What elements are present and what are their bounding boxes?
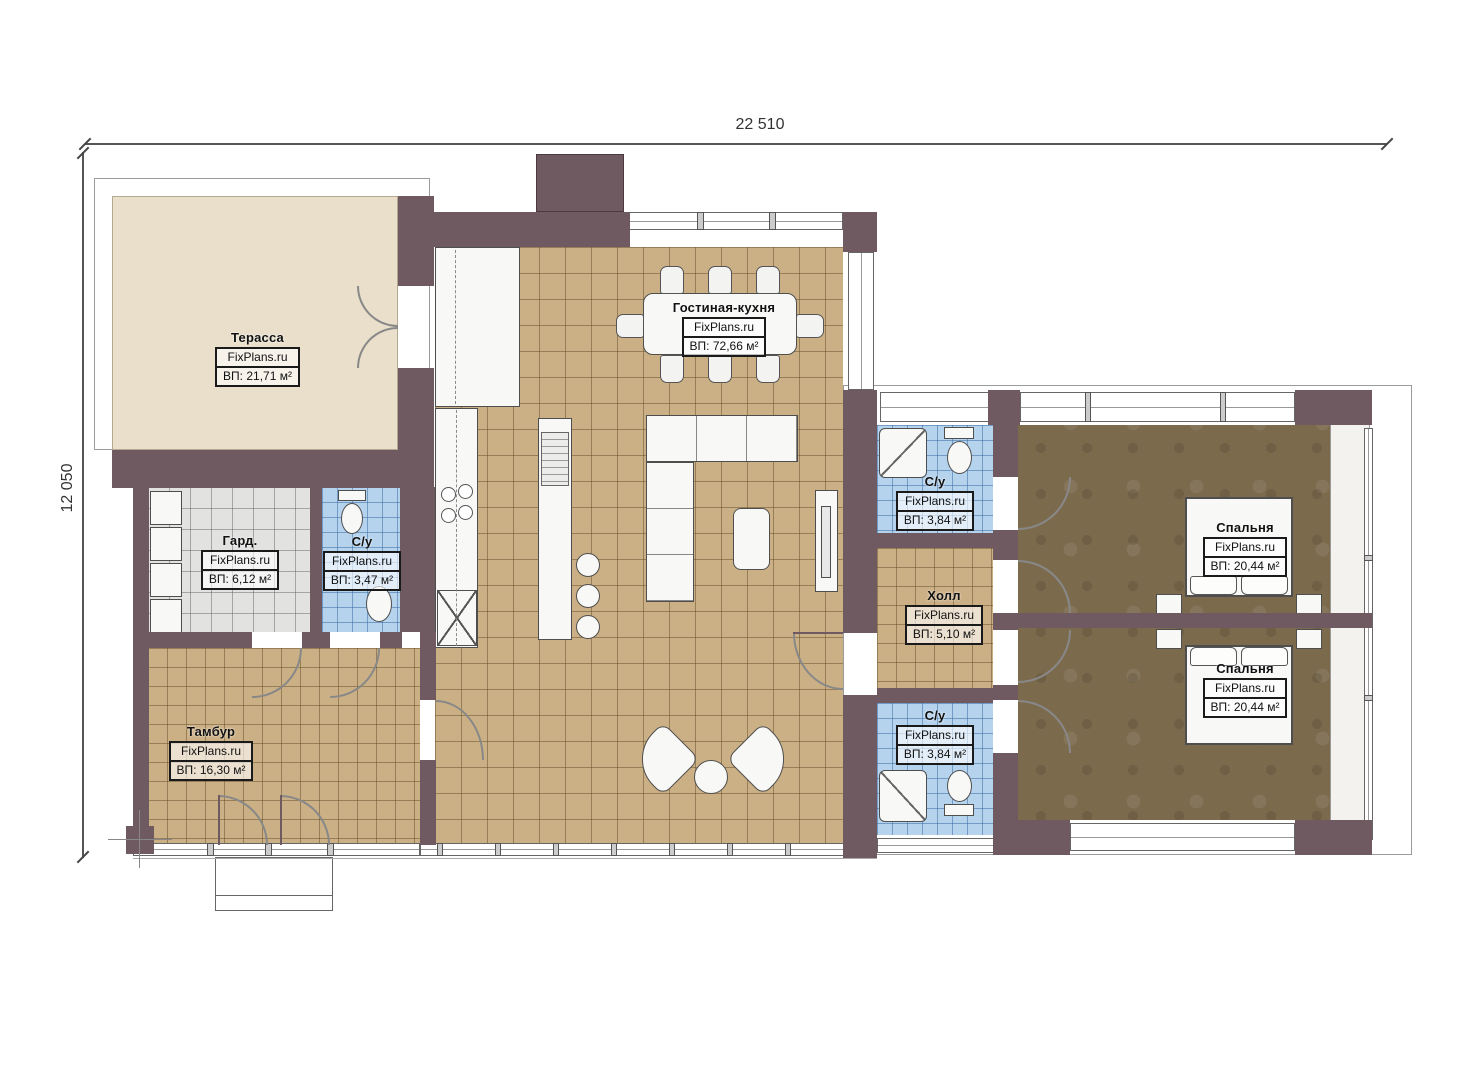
bar-stool bbox=[576, 584, 600, 608]
window bbox=[1364, 428, 1373, 840]
watermark: FixPlans.ru bbox=[898, 493, 972, 512]
axis-line bbox=[139, 810, 140, 868]
cooktop-burner bbox=[458, 505, 473, 520]
room-info-box: FixPlans.ru ВП: 16,30 м² bbox=[169, 741, 254, 781]
room-area: ВП: 20,44 м² bbox=[1205, 699, 1286, 716]
room-label-bathroom-2: С/у FixPlans.ru ВП: 3,84 м² bbox=[888, 474, 982, 531]
room-name: Холл bbox=[897, 588, 991, 603]
window-post bbox=[495, 843, 501, 856]
wall-segment bbox=[993, 685, 1018, 700]
dining-chair bbox=[796, 314, 824, 338]
room-info-box: FixPlans.ru ВП: 20,44 м² bbox=[1203, 537, 1288, 577]
room-info-box: FixPlans.ru ВП: 72,66 м² bbox=[682, 317, 767, 357]
entry-steps bbox=[215, 857, 333, 911]
wall-segment bbox=[1020, 820, 1070, 855]
window-post bbox=[1085, 392, 1091, 422]
room-name: Спальня bbox=[1191, 520, 1299, 535]
dimension-line-left bbox=[82, 152, 84, 858]
watermark: FixPlans.ru bbox=[907, 607, 981, 626]
window-post bbox=[1220, 392, 1226, 422]
room-info-box: FixPlans.ru ВП: 3,84 м² bbox=[896, 491, 974, 531]
shower-tray bbox=[879, 770, 927, 822]
window-post bbox=[785, 843, 791, 856]
window-post bbox=[669, 843, 675, 856]
wall-segment bbox=[877, 688, 993, 703]
bar-stool bbox=[576, 553, 600, 577]
wall-bedroom-divider bbox=[1018, 613, 1372, 628]
room-name: Терасса bbox=[200, 330, 315, 345]
cooktop-burner bbox=[441, 487, 456, 502]
wall-segment bbox=[400, 487, 435, 632]
room-area: ВП: 3,84 м² bbox=[898, 512, 972, 529]
cooktop-burner bbox=[441, 508, 456, 523]
toilet-bowl bbox=[947, 770, 972, 802]
wall-segment bbox=[302, 632, 330, 648]
dining-chair bbox=[708, 355, 732, 383]
window bbox=[1070, 823, 1295, 851]
room-name: С/у bbox=[320, 534, 404, 549]
structural-column bbox=[126, 826, 154, 854]
room-label-bedroom-2: Спальня FixPlans.ru ВП: 20,44 м² bbox=[1191, 661, 1299, 718]
room-label-vestibule: Тамбур FixPlans.ru ВП: 16,30 м² bbox=[163, 724, 259, 781]
wall-segment bbox=[843, 390, 877, 633]
window-post bbox=[207, 843, 214, 856]
kitchen-cabinets bbox=[435, 247, 520, 407]
room-info-box: FixPlans.ru ВП: 20,44 м² bbox=[1203, 678, 1288, 718]
dimension-height-label: 12 050 bbox=[59, 443, 79, 533]
wall-segment bbox=[420, 212, 630, 247]
axis-line bbox=[108, 839, 172, 840]
toilet-bowl bbox=[341, 503, 363, 534]
shower-tray bbox=[879, 428, 927, 478]
window bbox=[420, 843, 877, 856]
window-post bbox=[769, 212, 776, 230]
room-label-bathroom-1: С/у FixPlans.ru ВП: 3,47 м² bbox=[320, 534, 404, 591]
wardrobe-closet bbox=[150, 563, 182, 597]
wall-pillar bbox=[993, 820, 1020, 855]
wall-segment bbox=[380, 632, 402, 648]
dining-chair bbox=[756, 266, 780, 294]
pillow bbox=[1190, 576, 1237, 595]
wardrobe-closet bbox=[150, 491, 182, 525]
window-post bbox=[553, 843, 559, 856]
room-area: ВП: 72,66 м² bbox=[684, 338, 765, 355]
dining-chair bbox=[616, 314, 644, 338]
wall-segment bbox=[1295, 820, 1372, 855]
watermark: FixPlans.ru bbox=[203, 552, 277, 571]
window-post bbox=[437, 843, 443, 856]
window bbox=[848, 252, 874, 390]
toilet-bowl bbox=[947, 441, 972, 474]
watermark: FixPlans.ru bbox=[1205, 539, 1286, 558]
toilet-tank bbox=[944, 427, 974, 439]
bar-stool bbox=[576, 615, 600, 639]
counter-depth-line bbox=[455, 250, 456, 404]
dining-chair bbox=[756, 355, 780, 383]
room-label-living-kitchen: Гостиная-кухня FixPlans.ru ВП: 72,66 м² bbox=[660, 300, 788, 357]
room-name: Тамбур bbox=[163, 724, 259, 739]
watermark: FixPlans.ru bbox=[1205, 680, 1286, 699]
wall-segment bbox=[112, 450, 434, 488]
toilet-tank bbox=[338, 490, 366, 501]
window bbox=[1020, 392, 1295, 422]
room-area: ВП: 21,71 м² bbox=[217, 368, 298, 385]
room-area: ВП: 5,10 м² bbox=[907, 626, 981, 643]
boiler-unit bbox=[437, 590, 477, 646]
wall-segment bbox=[420, 632, 436, 700]
nightstand bbox=[1156, 594, 1182, 614]
step-edge bbox=[215, 895, 333, 896]
watermark: FixPlans.ru bbox=[684, 319, 765, 338]
door-leaf bbox=[218, 795, 220, 845]
watermark: FixPlans.ru bbox=[217, 349, 298, 368]
coffee-table bbox=[733, 508, 770, 570]
wall-segment bbox=[993, 530, 1018, 560]
floor-terrace bbox=[112, 196, 398, 450]
room-label-wardrobe: Гард. FixPlans.ru ВП: 6,12 м² bbox=[194, 533, 286, 590]
room-area: ВП: 3,84 м² bbox=[898, 746, 972, 763]
tv bbox=[821, 506, 831, 578]
wall-segment bbox=[877, 533, 993, 548]
window bbox=[880, 392, 990, 422]
room-info-box: FixPlans.ru ВП: 3,47 м² bbox=[323, 551, 401, 591]
room-name: Гард. bbox=[194, 533, 286, 548]
watermark: FixPlans.ru bbox=[325, 553, 399, 572]
room-name: Спальня bbox=[1191, 661, 1299, 676]
wardrobe-closet bbox=[150, 599, 182, 633]
chimney bbox=[536, 154, 624, 212]
window-post bbox=[1364, 555, 1373, 561]
counter-depth-line bbox=[456, 410, 457, 646]
floor-plan-canvas: Терасса FixPlans.ru ВП: 21,71 м² Гостина… bbox=[0, 0, 1473, 1080]
nightstand bbox=[1296, 594, 1322, 614]
room-info-box: FixPlans.ru ВП: 5,10 м² bbox=[905, 605, 983, 645]
corner-sofa-side bbox=[646, 462, 694, 602]
dining-chair bbox=[708, 266, 732, 294]
nightstand bbox=[1156, 629, 1182, 649]
window bbox=[133, 843, 420, 856]
window-post bbox=[697, 212, 704, 230]
sill-line bbox=[133, 858, 877, 859]
wall-segment bbox=[988, 390, 1020, 425]
dining-chair bbox=[660, 266, 684, 294]
room-label-hall: Холл FixPlans.ru ВП: 5,10 м² bbox=[897, 588, 991, 645]
door-leaf bbox=[280, 795, 282, 845]
room-name: Гостиная-кухня bbox=[660, 300, 788, 315]
wall-segment bbox=[1295, 390, 1372, 425]
room-label-bedroom-1: Спальня FixPlans.ru ВП: 20,44 м² bbox=[1191, 520, 1299, 577]
dining-chair bbox=[660, 355, 684, 383]
wall-segment bbox=[993, 613, 1018, 630]
cooktop-burner bbox=[458, 484, 473, 499]
room-info-box: FixPlans.ru ВП: 21,71 м² bbox=[215, 347, 300, 387]
window bbox=[628, 212, 843, 230]
room-name: С/у bbox=[888, 708, 982, 723]
dimension-width-label: 22 510 bbox=[680, 116, 840, 134]
corner-sofa-back bbox=[646, 415, 798, 462]
room-name: С/у bbox=[888, 474, 982, 489]
wardrobe-closet bbox=[150, 527, 182, 561]
room-info-box: FixPlans.ru ВП: 6,12 м² bbox=[201, 550, 279, 590]
door-leaf bbox=[793, 632, 843, 634]
watermark: FixPlans.ru bbox=[898, 727, 972, 746]
wall-segment bbox=[148, 632, 252, 648]
room-label-bathroom-3: С/у FixPlans.ru ВП: 3,84 м² bbox=[888, 708, 982, 765]
wall-segment bbox=[420, 760, 436, 845]
wall-pillar bbox=[843, 212, 877, 252]
window-post bbox=[611, 843, 617, 856]
wall-segment bbox=[843, 695, 877, 858]
room-area: ВП: 6,12 м² bbox=[203, 571, 277, 588]
island-sink bbox=[541, 432, 569, 486]
nightstand bbox=[1296, 629, 1322, 649]
room-info-box: FixPlans.ru ВП: 3,84 м² bbox=[896, 725, 974, 765]
side-table bbox=[694, 760, 728, 794]
window-post bbox=[1364, 695, 1373, 701]
window bbox=[877, 838, 995, 853]
room-area: ВП: 3,47 м² bbox=[325, 572, 399, 589]
room-area: ВП: 20,44 м² bbox=[1205, 558, 1286, 575]
pillow bbox=[1241, 576, 1288, 595]
watermark: FixPlans.ru bbox=[171, 743, 252, 762]
window-post bbox=[727, 843, 733, 856]
sink bbox=[366, 586, 392, 622]
toilet-tank bbox=[944, 804, 974, 816]
room-area: ВП: 16,30 м² bbox=[171, 762, 252, 779]
wall-segment bbox=[133, 487, 149, 845]
dimension-line-top bbox=[85, 143, 1387, 145]
room-label-terrace: Терасса FixPlans.ru ВП: 21,71 м² bbox=[200, 330, 315, 387]
